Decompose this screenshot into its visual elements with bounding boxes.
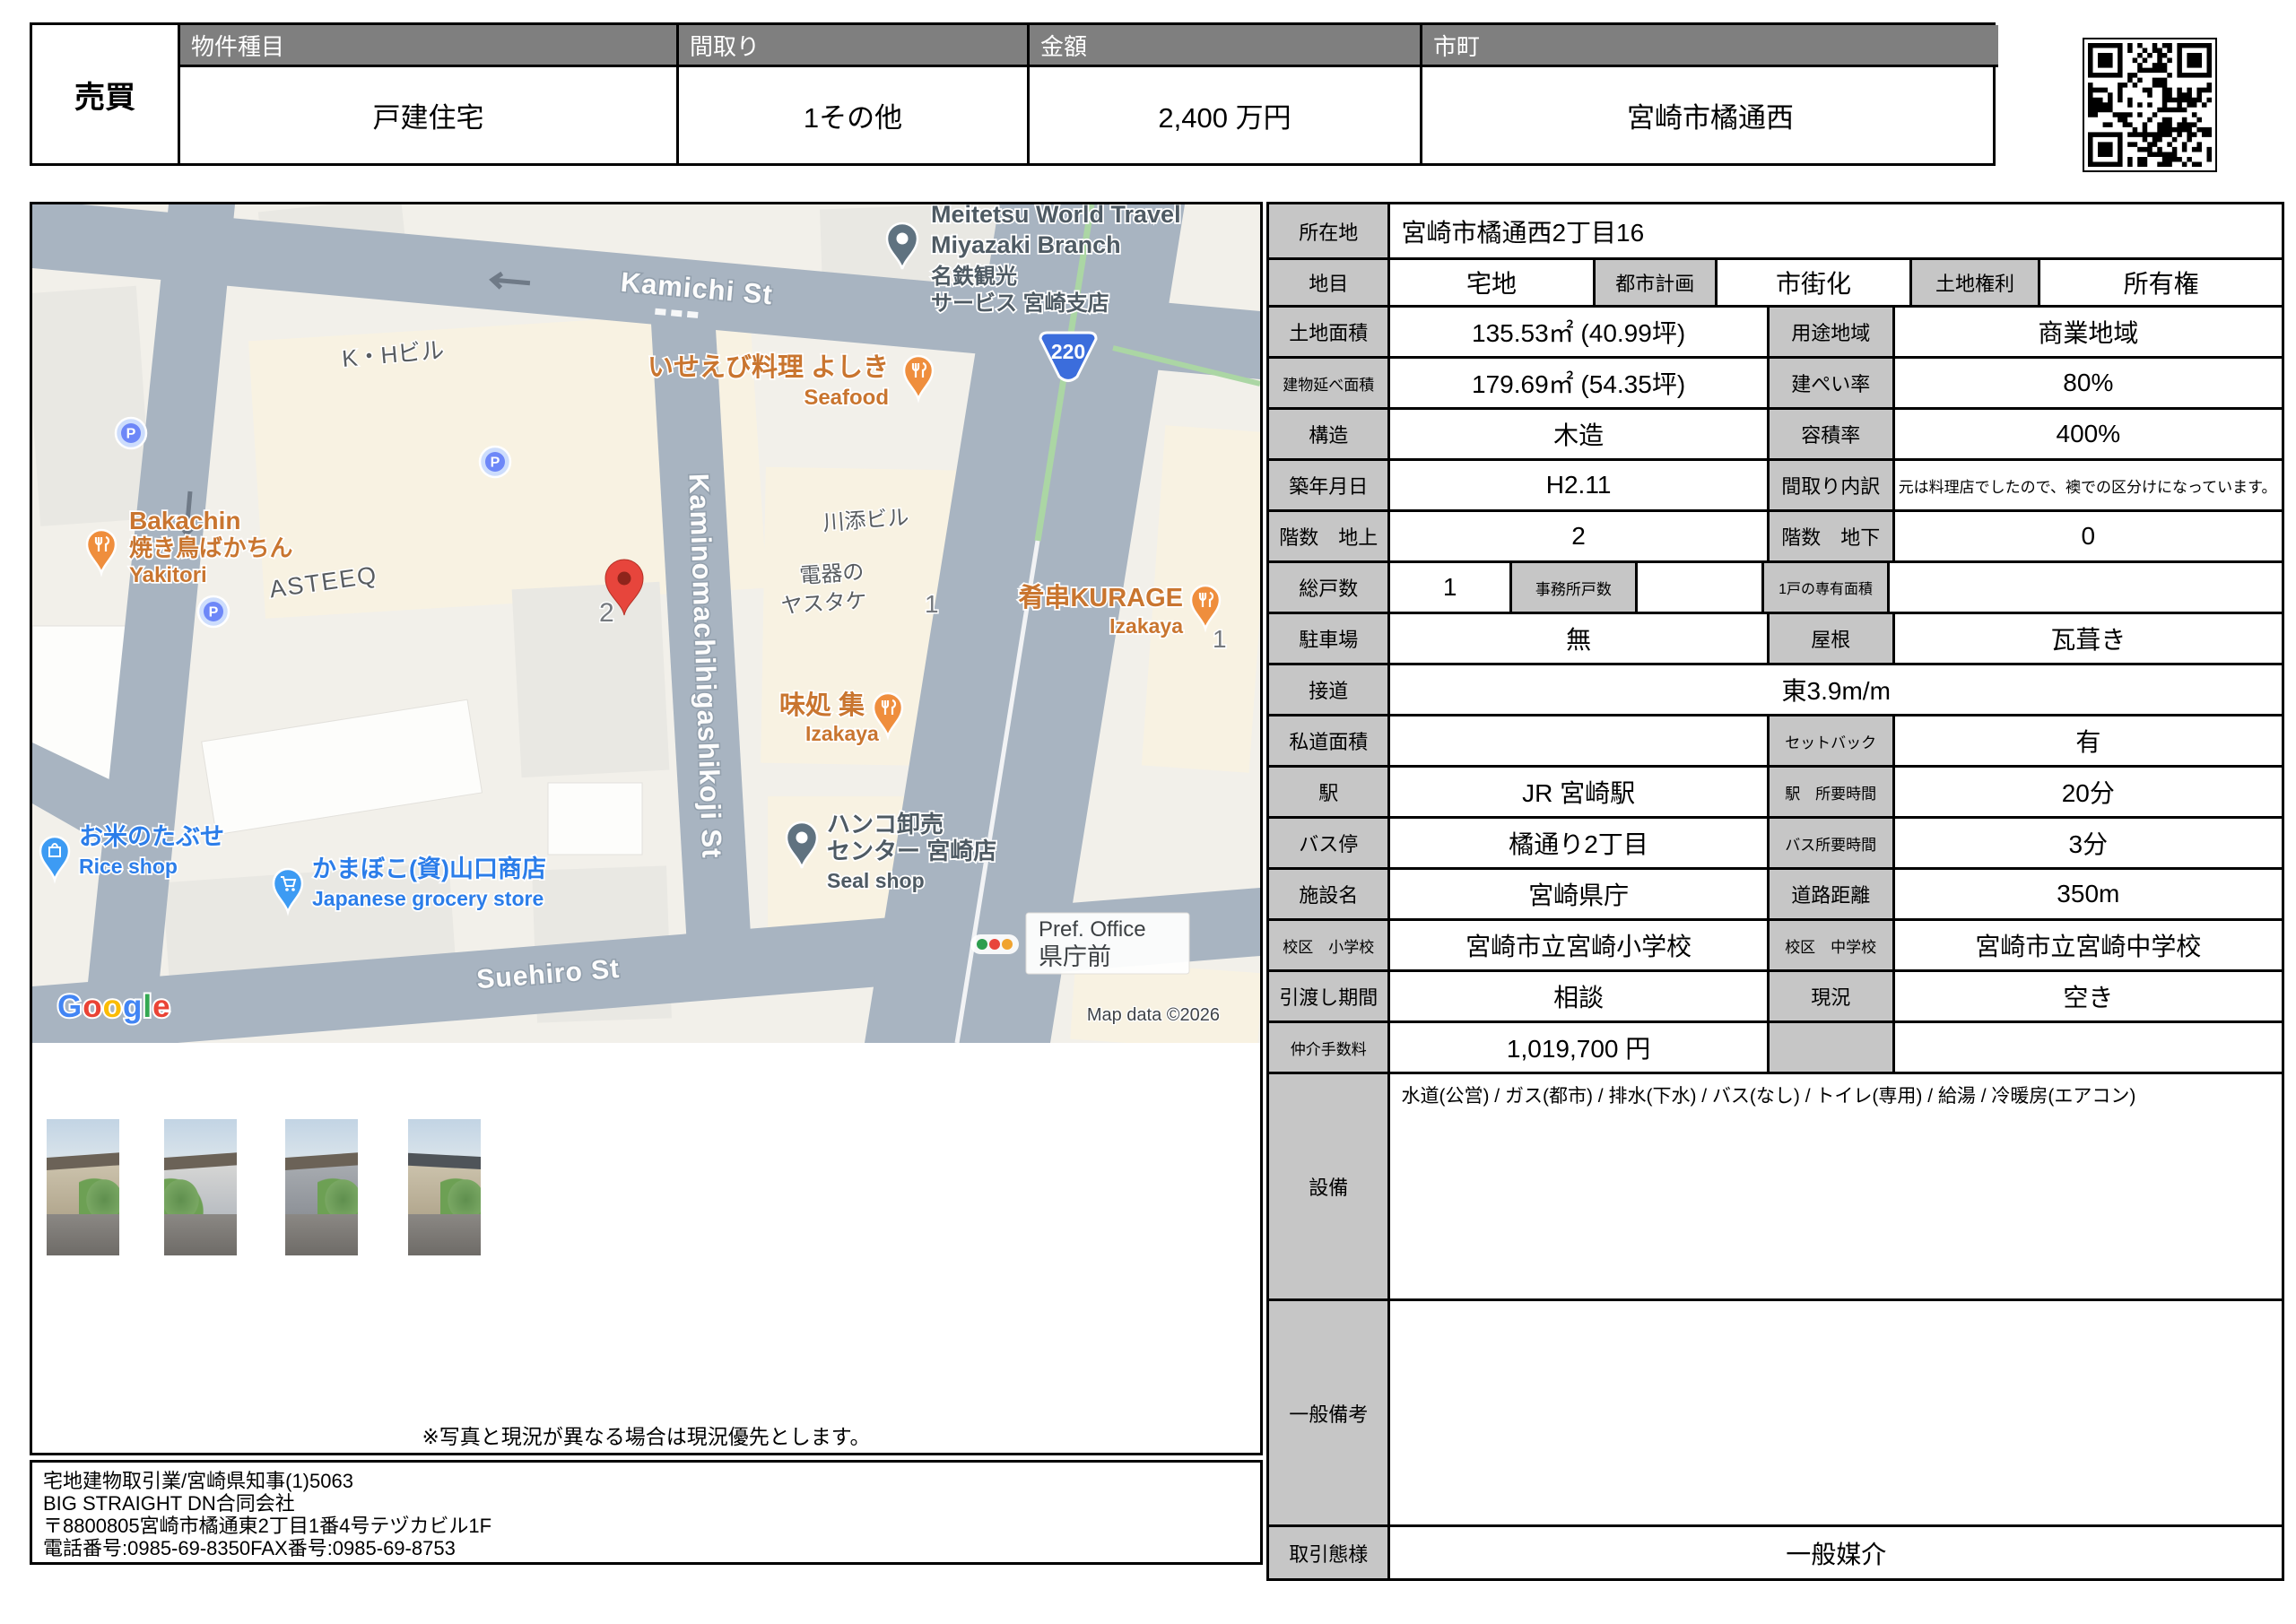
land-category-value: 宅地 — [1390, 260, 1595, 305]
svg-text:かまぼこ(資)山口商店: かまぼこ(資)山口商店 — [312, 855, 546, 882]
location-label: 所在地 — [1269, 204, 1390, 257]
price-value: 2,400 万円 — [1030, 67, 1420, 163]
handover-label: 引渡し期間 — [1269, 972, 1390, 1020]
land-rights-value: 所有権 — [2040, 260, 2282, 305]
svg-text:Pref. Office: Pref. Office — [1039, 917, 1146, 942]
google-logo: Google — [57, 989, 171, 1024]
agency-info-box: 宅地建物取引業/宮崎県知事(1)5063 BIG STRAIGHT DN合同会社… — [30, 1460, 1263, 1565]
svg-text:名鉄観光: 名鉄観光 — [931, 264, 1017, 289]
roof-label: 屋根 — [1770, 614, 1895, 663]
row-school-district: 校区 小学校 宮崎市立宮崎小学校 校区 中学校 宮崎市立宮崎中学校 — [1269, 921, 2282, 972]
agency-license-line: 宅地建物取引業/宮崎県知事(1)5063 — [43, 1470, 1249, 1492]
header-col-city: 市町 宮崎市橘通西 — [1422, 25, 1998, 163]
land-area-label: 土地面積 — [1269, 308, 1390, 356]
svg-text:味処 集: 味処 集 — [779, 690, 865, 720]
far-value: 400% — [1895, 410, 2282, 458]
header-table: 売買 物件種目 戸建住宅 間取り 1その他 金額 2,400 万円 市町 宮崎市… — [30, 22, 1996, 166]
unit-area-label: 1戸の専有面積 — [1764, 563, 1890, 612]
city-label: 市町 — [1422, 25, 1998, 67]
land-rights-label: 土地権利 — [1912, 260, 2040, 305]
transaction-type-value: 一般媒介 — [1390, 1527, 2282, 1578]
row-land-area: 土地面積 135.53㎡ (40.99坪) 用途地域 商業地域 — [1269, 308, 2282, 359]
row-handover: 引渡し期間 相談 現況 空き — [1269, 972, 2282, 1023]
zoning-label: 用途地域 — [1770, 308, 1895, 356]
header-col-layout: 間取り 1その他 — [679, 25, 1030, 163]
svg-text:サービス 宮崎支店: サービス 宮崎支店 — [931, 291, 1109, 316]
city-planning-label: 都市計画 — [1596, 260, 1718, 305]
bus-stop-value: 橘通り2丁目 — [1390, 819, 1769, 867]
svg-text:センター 宮崎店: センター 宮崎店 — [827, 838, 996, 864]
road-distance-label: 道路距離 — [1770, 870, 1895, 918]
structure-value: 木造 — [1390, 410, 1769, 458]
agency-phone-line: 電話番号:0985-69-8350FAX番号:0985-69-8753 — [43, 1537, 1249, 1559]
row-parking: 駐車場 無 屋根 瓦葺き — [1269, 614, 2282, 665]
row-location: 所在地 宮崎市橘通西2丁目16 — [1269, 204, 2282, 260]
row-built-date: 築年月日 H2.11 間取り内訳 元は料理店でしたので、襖での区分けになっていま… — [1269, 461, 2282, 512]
layout-detail-value: 元は料理店でしたので、襖での区分けになっています。 — [1895, 461, 2282, 509]
property-photo-1 — [47, 1119, 119, 1255]
station-time-value: 20分 — [1895, 768, 2282, 816]
private-road-value — [1390, 716, 1769, 765]
property-detail-table: 所在地 宮崎市橘通西2丁目16 地目 宅地 都市計画 市街化 土地権利 所有権 … — [1266, 202, 2284, 1581]
parking-icon: P — [480, 447, 510, 477]
junior-high-label: 校区 中学校 — [1770, 921, 1895, 969]
bus-time-label: バス所要時間 — [1770, 819, 1895, 867]
price-label: 金額 — [1030, 25, 1420, 67]
row-floor-area: 建物延べ面積 179.69㎡ (54.35坪) 建ぺい率 80% — [1269, 359, 2282, 410]
city-planning-value: 市街化 — [1718, 260, 1912, 305]
office-units-value — [1638, 563, 1764, 612]
row-road-contact: 接道 東3.9m/m — [1269, 665, 2282, 716]
parking-icon: P — [116, 418, 146, 448]
floor-area-label: 建物延べ面積 — [1269, 359, 1390, 407]
agency-address-line: 〒8800805宮崎市橘通東2丁目1番4号テヅカビル1F — [43, 1515, 1249, 1537]
unit-area-value — [1890, 563, 2276, 612]
svg-text:P: P — [209, 605, 219, 621]
qr-code — [2083, 38, 2217, 172]
land-area-value: 135.53㎡ (40.99坪) — [1390, 308, 1769, 356]
layout-detail-label: 間取り内訳 — [1770, 461, 1895, 509]
commission-value: 1,019,700 円 — [1390, 1023, 1769, 1072]
svg-text:お米のたぶせ: お米のたぶせ — [79, 823, 224, 850]
commission-label: 仲介手数料 — [1269, 1023, 1390, 1072]
commission-spacer-gray — [1770, 1023, 1895, 1072]
property-photo-2 — [164, 1119, 237, 1255]
svg-text:県庁前: 県庁前 — [1039, 943, 1111, 970]
private-road-label: 私道面積 — [1269, 716, 1390, 765]
land-category-label: 地目 — [1269, 260, 1390, 305]
floors-above-value: 2 — [1390, 512, 1769, 560]
svg-text:Rice shop: Rice shop — [79, 855, 178, 878]
header-col-price: 金額 2,400 万円 — [1030, 25, 1422, 163]
commission-spacer — [1895, 1023, 2282, 1072]
zoning-value: 商業地域 — [1895, 308, 2282, 356]
location-value: 宮崎市橘通西2丁目16 — [1390, 204, 2282, 257]
property-type-label: 物件種目 — [180, 25, 676, 67]
svg-text:Miyazaki Branch: Miyazaki Branch — [931, 231, 1121, 258]
block-number: 2 — [599, 598, 614, 628]
bcr-value: 80% — [1895, 359, 2282, 407]
svg-text:Izakaya: Izakaya — [805, 722, 879, 745]
floors-below-value: 0 — [1895, 512, 2282, 560]
row-structure: 構造 木造 容積率 400% — [1269, 410, 2282, 461]
svg-text:焼き鳥ばかちん: 焼き鳥ばかちん — [129, 534, 293, 561]
built-label: 築年月日 — [1269, 461, 1390, 509]
header-col-property-type: 物件種目 戸建住宅 — [180, 25, 679, 163]
total-units-label: 総戸数 — [1269, 563, 1390, 612]
row-transaction-type: 取引態様 一般媒介 — [1269, 1527, 2282, 1578]
bus-time-value: 3分 — [1895, 819, 2282, 867]
svg-text:ハンコ卸売: ハンコ卸売 — [827, 811, 944, 838]
city-value: 宮崎市橘通西 — [1422, 67, 1998, 163]
deal-type-cell: 売買 — [32, 25, 180, 163]
svg-text:220: 220 — [1051, 340, 1085, 363]
road-contact-value: 東3.9m/m — [1390, 665, 2282, 714]
row-remarks: 一般備考 — [1269, 1301, 2282, 1527]
svg-text:肴串KURAGE: 肴串KURAGE — [1018, 583, 1183, 612]
road-distance-value: 350m — [1895, 870, 2282, 918]
property-type-value: 戸建住宅 — [180, 67, 676, 163]
setback-value: 有 — [1895, 716, 2282, 765]
row-station: 駅 JR 宮崎駅 駅 所要時間 20分 — [1269, 768, 2282, 819]
agency-name-line: BIG STRAIGHT DN合同会社 — [43, 1492, 1249, 1515]
svg-text:Meitetsu World Travel: Meitetsu World Travel — [931, 204, 1181, 228]
bcr-label: 建ぺい率 — [1770, 359, 1895, 407]
row-private-road: 私道面積 セットバック 有 — [1269, 716, 2282, 768]
svg-text:Yakitori: Yakitori — [129, 563, 207, 587]
svg-text:電器の: 電器の — [799, 560, 865, 588]
facility-label: 施設名 — [1269, 870, 1390, 918]
block-number: 1 — [1213, 625, 1227, 653]
layout-label: 間取り — [679, 25, 1027, 67]
svg-text:Japanese grocery store: Japanese grocery store — [312, 887, 544, 910]
station-value: JR 宮崎駅 — [1390, 768, 1769, 816]
map-and-photos-box: Kamichi St Suehiro St Kaminomachihigashi… — [30, 202, 1263, 1455]
bus-stop-label: バス停 — [1269, 819, 1390, 867]
svg-text:P: P — [491, 456, 500, 471]
junior-high-value: 宮崎市立宮崎中学校 — [1895, 921, 2282, 969]
floors-below-label: 階数 地下 — [1770, 512, 1895, 560]
transaction-type-label: 取引態様 — [1269, 1527, 1390, 1578]
row-units: 総戸数 1 事務所戸数 1戸の専有面積 — [1269, 563, 2282, 614]
row-floors: 階数 地上 2 階数 地下 0 — [1269, 512, 2282, 563]
elementary-label: 校区 小学校 — [1269, 921, 1390, 969]
svg-text:Bakachin: Bakachin — [129, 507, 241, 534]
parking-value: 無 — [1390, 614, 1769, 663]
property-flyer-page: 売買 物件種目 戸建住宅 間取り 1その他 金額 2,400 万円 市町 宮崎市… — [0, 0, 2296, 1624]
far-label: 容積率 — [1770, 410, 1895, 458]
layout-value: 1その他 — [679, 67, 1027, 163]
block-number: 1 — [925, 590, 939, 618]
remarks-label: 一般備考 — [1269, 1301, 1390, 1524]
row-bus-stop: バス停 橘通り2丁目 バス所要時間 3分 — [1269, 819, 2282, 870]
elementary-value: 宮崎市立宮崎小学校 — [1390, 921, 1769, 969]
equipment-label: 設備 — [1269, 1074, 1390, 1298]
svg-text:Seal shop: Seal shop — [827, 869, 925, 892]
floor-area-value: 179.69㎡ (54.35坪) — [1390, 359, 1769, 407]
row-facility: 施設名 宮崎県庁 道路距離 350m — [1269, 870, 2282, 921]
parking-label: 駐車場 — [1269, 614, 1390, 663]
structure-label: 構造 — [1269, 410, 1390, 458]
handover-value: 相談 — [1390, 972, 1769, 1020]
photo-disclaimer-note: ※写真と現況が異なる場合は現況優先とします。 — [32, 1420, 1260, 1450]
floors-above-label: 階数 地上 — [1269, 512, 1390, 560]
photo-strip — [32, 1119, 1260, 1255]
row-commission: 仲介手数料 1,019,700 円 — [1269, 1023, 2282, 1074]
equipment-value: 水道(公営) / ガス(都市) / 排水(下水) / バス(なし) / トイレ(… — [1390, 1074, 2282, 1298]
row-equipment: 設備 水道(公営) / ガス(都市) / 排水(下水) / バス(なし) / ト… — [1269, 1074, 2282, 1301]
current-status-value: 空き — [1895, 972, 2282, 1020]
map-copyright: Map data ©2026 — [1087, 1005, 1220, 1025]
setback-label: セットバック — [1770, 716, 1895, 765]
roof-value: 瓦葺き — [1895, 614, 2282, 663]
property-photo-4 — [408, 1119, 481, 1255]
station-time-label: 駅 所要時間 — [1770, 768, 1895, 816]
row-land-category: 地目 宅地 都市計画 市街化 土地権利 所有権 — [1269, 260, 2282, 308]
built-value: H2.11 — [1390, 461, 1769, 509]
traffic-light-icon — [970, 934, 1019, 954]
svg-text:P: P — [126, 427, 136, 442]
svg-text:いせえび料理 よしき: いせえび料理 よしき — [648, 352, 889, 382]
total-units-value: 1 — [1390, 563, 1511, 612]
google-map: Kamichi St Suehiro St Kaminomachihigashi… — [32, 204, 1260, 1043]
svg-text:Seafood: Seafood — [804, 386, 889, 410]
remarks-value — [1390, 1301, 2282, 1524]
station-label: 駅 — [1269, 768, 1390, 816]
parking-icon: P — [198, 596, 229, 627]
facility-value: 宮崎県庁 — [1390, 870, 1769, 918]
current-status-label: 現況 — [1770, 972, 1895, 1020]
road-contact-label: 接道 — [1269, 665, 1390, 714]
svg-text:Izakaya: Izakaya — [1109, 614, 1183, 638]
property-photo-3 — [285, 1119, 358, 1255]
office-units-label: 事務所戸数 — [1512, 563, 1638, 612]
